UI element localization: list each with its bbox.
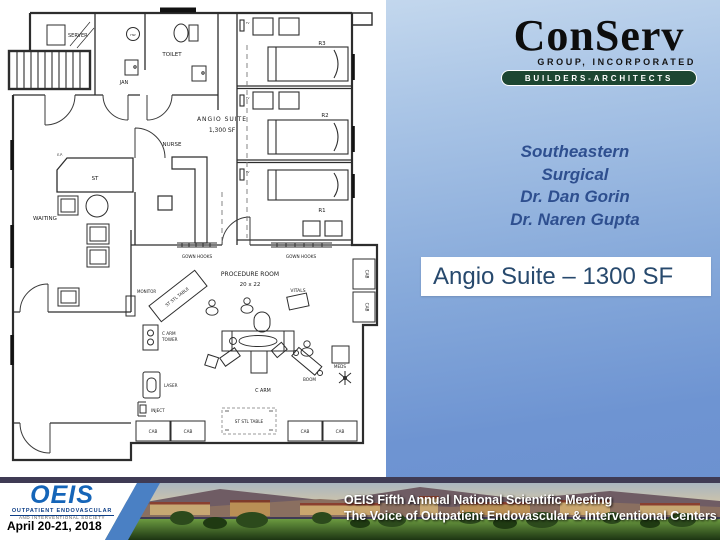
- label-monitor: MONITOR: [137, 289, 156, 294]
- label-c-arm: C ARM: [255, 388, 271, 394]
- conserv-wordmark: ConServ: [501, 14, 697, 58]
- slide: SERVER JAN TOILET HW ANGIO SUITE 1,300 S…: [0, 0, 720, 540]
- label-tv-r1: TV: [246, 170, 250, 174]
- label-tv-r2: TV: [246, 96, 250, 100]
- label-st-stl-table-angled: ST STL TABLE: [164, 286, 190, 308]
- label-st-stl-table-bottom: ST STL TABLE: [235, 419, 264, 424]
- label-inject: INJECT: [151, 408, 165, 413]
- client-line-1: Southeastern: [430, 141, 720, 164]
- label-ep: E.P.: [57, 153, 62, 157]
- banner-line-1: OEIS Fifth Annual National Scientific Me…: [344, 492, 717, 508]
- label-cab-1: CAB: [149, 429, 158, 434]
- label-cab-6: CAB: [365, 303, 370, 312]
- label-c-arm-tower-1: C ARM: [162, 331, 176, 336]
- label-laser: LASER: [164, 383, 178, 388]
- label-waiting: WAITING: [33, 216, 57, 222]
- label-r1: R1: [318, 208, 325, 214]
- footer-date: April 20-21, 2018: [7, 519, 102, 533]
- label-c-arm-tower-2: TOWER: [161, 337, 178, 342]
- client-text-block: Southeastern Surgical Dr. Dan Gorin Dr. …: [430, 141, 720, 231]
- label-hw: HW: [130, 33, 135, 37]
- conserv-builders-badge: BUILDERS-ARCHITECTS: [501, 70, 697, 86]
- floor-plan: SERVER JAN TOILET HW ANGIO SUITE 1,300 S…: [0, 0, 386, 477]
- label-cab-3: CAB: [301, 429, 310, 434]
- floor-plan-panel: SERVER JAN TOILET HW ANGIO SUITE 1,300 S…: [0, 0, 386, 477]
- label-gown-hooks-left: GOWN HOOKS: [182, 254, 213, 259]
- door-swings: [20, 95, 250, 453]
- label-tv-r3: TV: [246, 21, 250, 25]
- label-angio-sf: 1,300 SF: [209, 127, 236, 134]
- label-cab-2: CAB: [184, 429, 193, 434]
- waiting-furniture: [58, 195, 109, 306]
- label-jan: JAN: [119, 80, 129, 86]
- label-cab-5: CAB: [365, 270, 370, 279]
- label-r3: R3: [318, 41, 326, 47]
- client-line-2: Surgical: [430, 164, 720, 187]
- angio-suite-callout: Angio Suite – 1300 SF: [421, 257, 711, 296]
- banner-line-2: The Voice of Outpatient Endovascular & I…: [344, 508, 717, 524]
- label-procedure-size: 20 x 22: [240, 282, 261, 288]
- label-cab-4: CAB: [336, 429, 345, 434]
- client-line-3: Dr. Dan Gorin: [430, 186, 720, 209]
- plan-labels: SERVER JAN TOILET HW ANGIO SUITE 1,300 S…: [33, 21, 369, 434]
- label-angio-suite: ANGIO SUITE: [197, 116, 247, 123]
- nurse-station: [158, 157, 207, 243]
- recovery-furniture: [240, 18, 348, 236]
- label-meds: MEDS: [334, 364, 346, 369]
- oeis-logo: OEIS: [16, 483, 108, 508]
- label-procedure-room: PROCEDURE ROOM: [221, 271, 279, 278]
- label-st: ST: [92, 176, 99, 182]
- label-server: SERVER: [68, 33, 88, 39]
- banner-text: OEIS Fifth Annual National Scientific Me…: [344, 492, 717, 524]
- client-line-4: Dr. Naren Gupta: [430, 209, 720, 232]
- label-nurse: NURSE: [163, 142, 182, 148]
- label-r2: R2: [321, 113, 328, 119]
- label-boom: BOOM: [303, 377, 316, 382]
- label-vitals: VITALS: [290, 288, 305, 294]
- dashed-partitions: [222, 45, 247, 242]
- conserv-logo: ConServ GROUP, INCORPORATED BUILDERS-ARC…: [501, 14, 697, 86]
- label-toilet: TOILET: [161, 52, 182, 58]
- label-gown-hooks-right: GOWN HOOKS: [286, 254, 317, 259]
